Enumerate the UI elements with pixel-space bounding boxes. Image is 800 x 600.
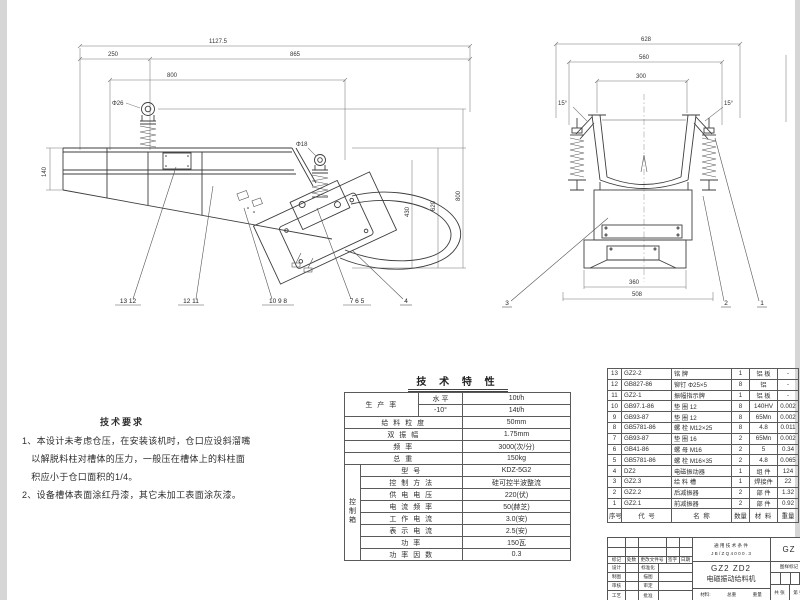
spec-cb-label: 型 号 <box>361 465 463 477</box>
technical-characteristics-title-text: 技 术 特 性 <box>408 377 507 392</box>
spec-cb-label: 功 率 因 数 <box>361 549 463 561</box>
callout-2: 2 <box>724 300 728 307</box>
weight-label: 重量 <box>753 592 762 598</box>
dim-end-mid: 560 <box>639 55 650 61</box>
dim-front-eye-hole: Φ26 <box>112 101 124 107</box>
callout-4: 4 <box>404 298 408 305</box>
parts-list-table: 13GZ2-2铭 牌1铝 板-12GB827-86铆钉 Φ25×58铝-11GZ… <box>607 368 799 523</box>
product-model: GZ2 ZD2 <box>711 564 751 575</box>
parts-list-row: 4DZ2电磁振动器1组 件124 <box>608 466 799 477</box>
spec-production-cond-0: 水 平 <box>419 393 463 405</box>
dim-height-left: 140 <box>42 166 48 177</box>
dim-overall-length: 1127.5 <box>209 39 228 45</box>
dim-height-3: 800 <box>456 190 462 201</box>
parts-list-row: 8GB5781-86螺 栓 M12×2584.80.011 <box>608 422 799 433</box>
technical-characteristics: 技 术 特 性 生 产 率 水 平 10t/h -10° 14t/h 给 料 粒… <box>344 373 572 561</box>
dim-end-bottom-outer: 508 <box>632 292 643 298</box>
spec-cb-label: 工 作 电 流 <box>361 513 463 525</box>
dim-angle-left: 15° <box>558 101 568 107</box>
spec-control-box-group: 控 制 箱 <box>345 465 361 561</box>
dim-right-span: 865 <box>290 52 301 58</box>
sheets-total-label: 共 张 <box>770 584 790 600</box>
end-view-dimensions: 628 560 300 15° 15° 360 508 <box>554 37 742 301</box>
bom-header-weight: 重量 <box>778 509 799 523</box>
parts-list-row: 7GB93-87垫 圈 16265Mn0.002 <box>608 433 799 444</box>
spec-row-value: 1.75mm <box>463 429 571 441</box>
parts-list-row: 1GZ2.1前减振器2部 件0.92 <box>608 498 799 509</box>
bom-header-qty: 数量 <box>732 509 750 523</box>
bom-header-code: 代 号 <box>622 509 672 523</box>
parts-list-body: 13GZ2-2铭 牌1铝 板-12GB827-86铆钉 Φ25×58铝-11GZ… <box>608 369 799 509</box>
callout-7-6-5: 7 6 5 <box>350 298 365 305</box>
spec-cb-label: 供 电 电 压 <box>361 489 463 501</box>
engineering-drawing-sheet: { "drawing": { "side_view": { "dim_overa… <box>0 0 800 600</box>
material-label: 材料: <box>700 592 710 598</box>
parts-list-row: 5GB5781-86螺 栓 M16×3524.80.065 <box>608 455 799 466</box>
electromagnetic-vibrator-box <box>253 172 396 284</box>
bom-header-name: 名 称 <box>672 509 732 523</box>
spec-cb-label: 表 示 电 流 <box>361 525 463 537</box>
product-name: 电磁振动给料机 <box>707 575 756 584</box>
parts-list-row: 6GB41-86螺 母 M16250.34 <box>608 444 799 455</box>
parts-list-row: 3GZ2.3给 料 槽1焊接件22 <box>608 476 799 487</box>
technical-requirements-body: 1、本设计未考虑仓压，在安装该机时，仓口应设斜溜嘴 以解脱料柱对槽体的压力，一般… <box>22 432 266 504</box>
callout-3: 3 <box>505 300 509 307</box>
nameplate-plate <box>163 153 191 169</box>
dim-end-bottom-inner: 360 <box>629 280 640 286</box>
sign-process: 工艺 <box>608 590 626 600</box>
spec-cb-value: 150瓦 <box>463 537 571 549</box>
end-view-trough-section <box>576 94 712 282</box>
spec-row-label: 总 重 <box>345 453 463 465</box>
end-view-left-damper <box>568 118 586 190</box>
spec-row-value: 50mm <box>463 417 571 429</box>
parts-list-row: 9GB93-87垫 圈 12865Mn0.002 <box>608 412 799 423</box>
spec-production-label: 生 产 率 <box>345 393 419 417</box>
drawing-views: 1127.5 250 865 800 Φ26 Φ18 140 430 620 8… <box>0 0 800 370</box>
technical-characteristics-title: 技 术 特 性 <box>344 373 572 388</box>
drawing-number: GZ <box>770 538 800 562</box>
front-hanger-spring <box>140 103 156 149</box>
spec-cb-label: 控 制 方 法 <box>361 477 463 489</box>
dim-left-span: 250 <box>108 52 119 58</box>
parts-list-row: 13GZ2-2铭 牌1铝 板- <box>608 369 799 380</box>
spec-row-value: 150kg <box>463 453 571 465</box>
parts-list-row: 2GZ2.2后减振器2部 件1.32 <box>608 487 799 498</box>
spec-row-label: 双 振 幅 <box>345 429 463 441</box>
spec-cb-value: 3.0(安) <box>463 513 571 525</box>
flexible-conduit-loop <box>340 192 461 269</box>
dim-height-1: 430 <box>405 206 411 217</box>
technical-requirements: 技术要求 1、本设计未考虑仓压，在安装该机时，仓口应设斜溜嘴 以解脱料柱对槽体的… <box>22 413 266 504</box>
parts-list-row: 10GB97.1-86垫 圈 128140HV0.002 <box>608 401 799 412</box>
spec-cb-value: 2.5(安) <box>463 525 571 537</box>
side-view-feeder-trough <box>63 148 332 239</box>
technical-requirements-title: 技术要求 <box>22 413 222 431</box>
parts-list-row: 11GZ2-1振幅指示牌1铝 板- <box>608 390 799 401</box>
spec-cb-value: 50(赫芝) <box>463 501 571 513</box>
dim-rear-eye-hole: Φ18 <box>296 142 308 148</box>
dim-end-overall: 628 <box>641 37 652 43</box>
dim-angle-right: 15° <box>724 101 734 107</box>
general-spec-line2: J B / Z Q 4 0 0 0 . 3 <box>711 550 751 557</box>
total-weight-label: 总重 <box>727 592 736 598</box>
side-view-callouts: 13 12 12 11 10 9 8 7 6 5 4 <box>115 167 412 305</box>
callout-10-9-8: 10 9 8 <box>269 298 287 305</box>
sign-approve: 批准 <box>638 590 659 600</box>
spec-cb-label: 功 率 <box>361 537 463 549</box>
spec-cb-value: 220(伏) <box>463 489 571 501</box>
material-row: 材料: 总重 重量 <box>692 588 771 600</box>
spec-cb-value: 0.3 <box>463 549 571 561</box>
spec-production-cond-1: -10° <box>419 405 463 417</box>
bom-header-seq: 序号 <box>608 509 622 523</box>
general-spec-cell: 通 用 技 术 条 件 J B / Z Q 4 0 0 0 . 3 <box>692 538 771 562</box>
tech-spec-table: 生 产 率 水 平 10t/h -10° 14t/h 给 料 粒 度 50mm … <box>344 392 571 561</box>
title-block: 标记 处数 更改文件号 签字 日期 设计 标准化 制图 描图 审核 审定 工艺 … <box>607 537 800 600</box>
callout-13-12: 13 12 <box>120 298 137 305</box>
parts-list-header-row: 序号 代 号 名 称 数量 材 料 重量 <box>608 509 799 523</box>
callout-12-11: 12 11 <box>183 298 199 305</box>
sheet-number-label: 第 张 <box>789 584 800 600</box>
callout-1: 1 <box>760 300 764 307</box>
spec-cb-value: 硅可控半波整流 <box>463 477 571 489</box>
general-spec-line1: 通 用 技 术 条 件 <box>714 542 748 549</box>
dim-hanger-span: 800 <box>167 73 178 79</box>
bom-header-material: 材 料 <box>750 509 778 523</box>
parts-list: 13GZ2-2铭 牌1铝 板-12GB827-86铆钉 Φ25×58铝-11GZ… <box>607 368 799 523</box>
product-name-cell: GZ2 ZD2 电磁振动给料机 <box>692 561 771 589</box>
spec-production-value-0: 10t/h <box>463 393 571 405</box>
parts-list-row: 12GB827-86铆钉 Φ25×58铝- <box>608 379 799 390</box>
spec-cb-label: 电 流 频 率 <box>361 501 463 513</box>
spec-row-label: 频 率 <box>345 441 463 453</box>
spec-production-value-1: 14t/h <box>463 405 571 417</box>
spec-cb-value: KDZ-5G2 <box>463 465 571 477</box>
spec-row-value: 3000(次/分) <box>463 441 571 453</box>
dim-end-top-inner: 300 <box>636 74 647 80</box>
end-view-right-damper <box>700 118 718 190</box>
spec-row-label: 给 料 粒 度 <box>345 417 463 429</box>
